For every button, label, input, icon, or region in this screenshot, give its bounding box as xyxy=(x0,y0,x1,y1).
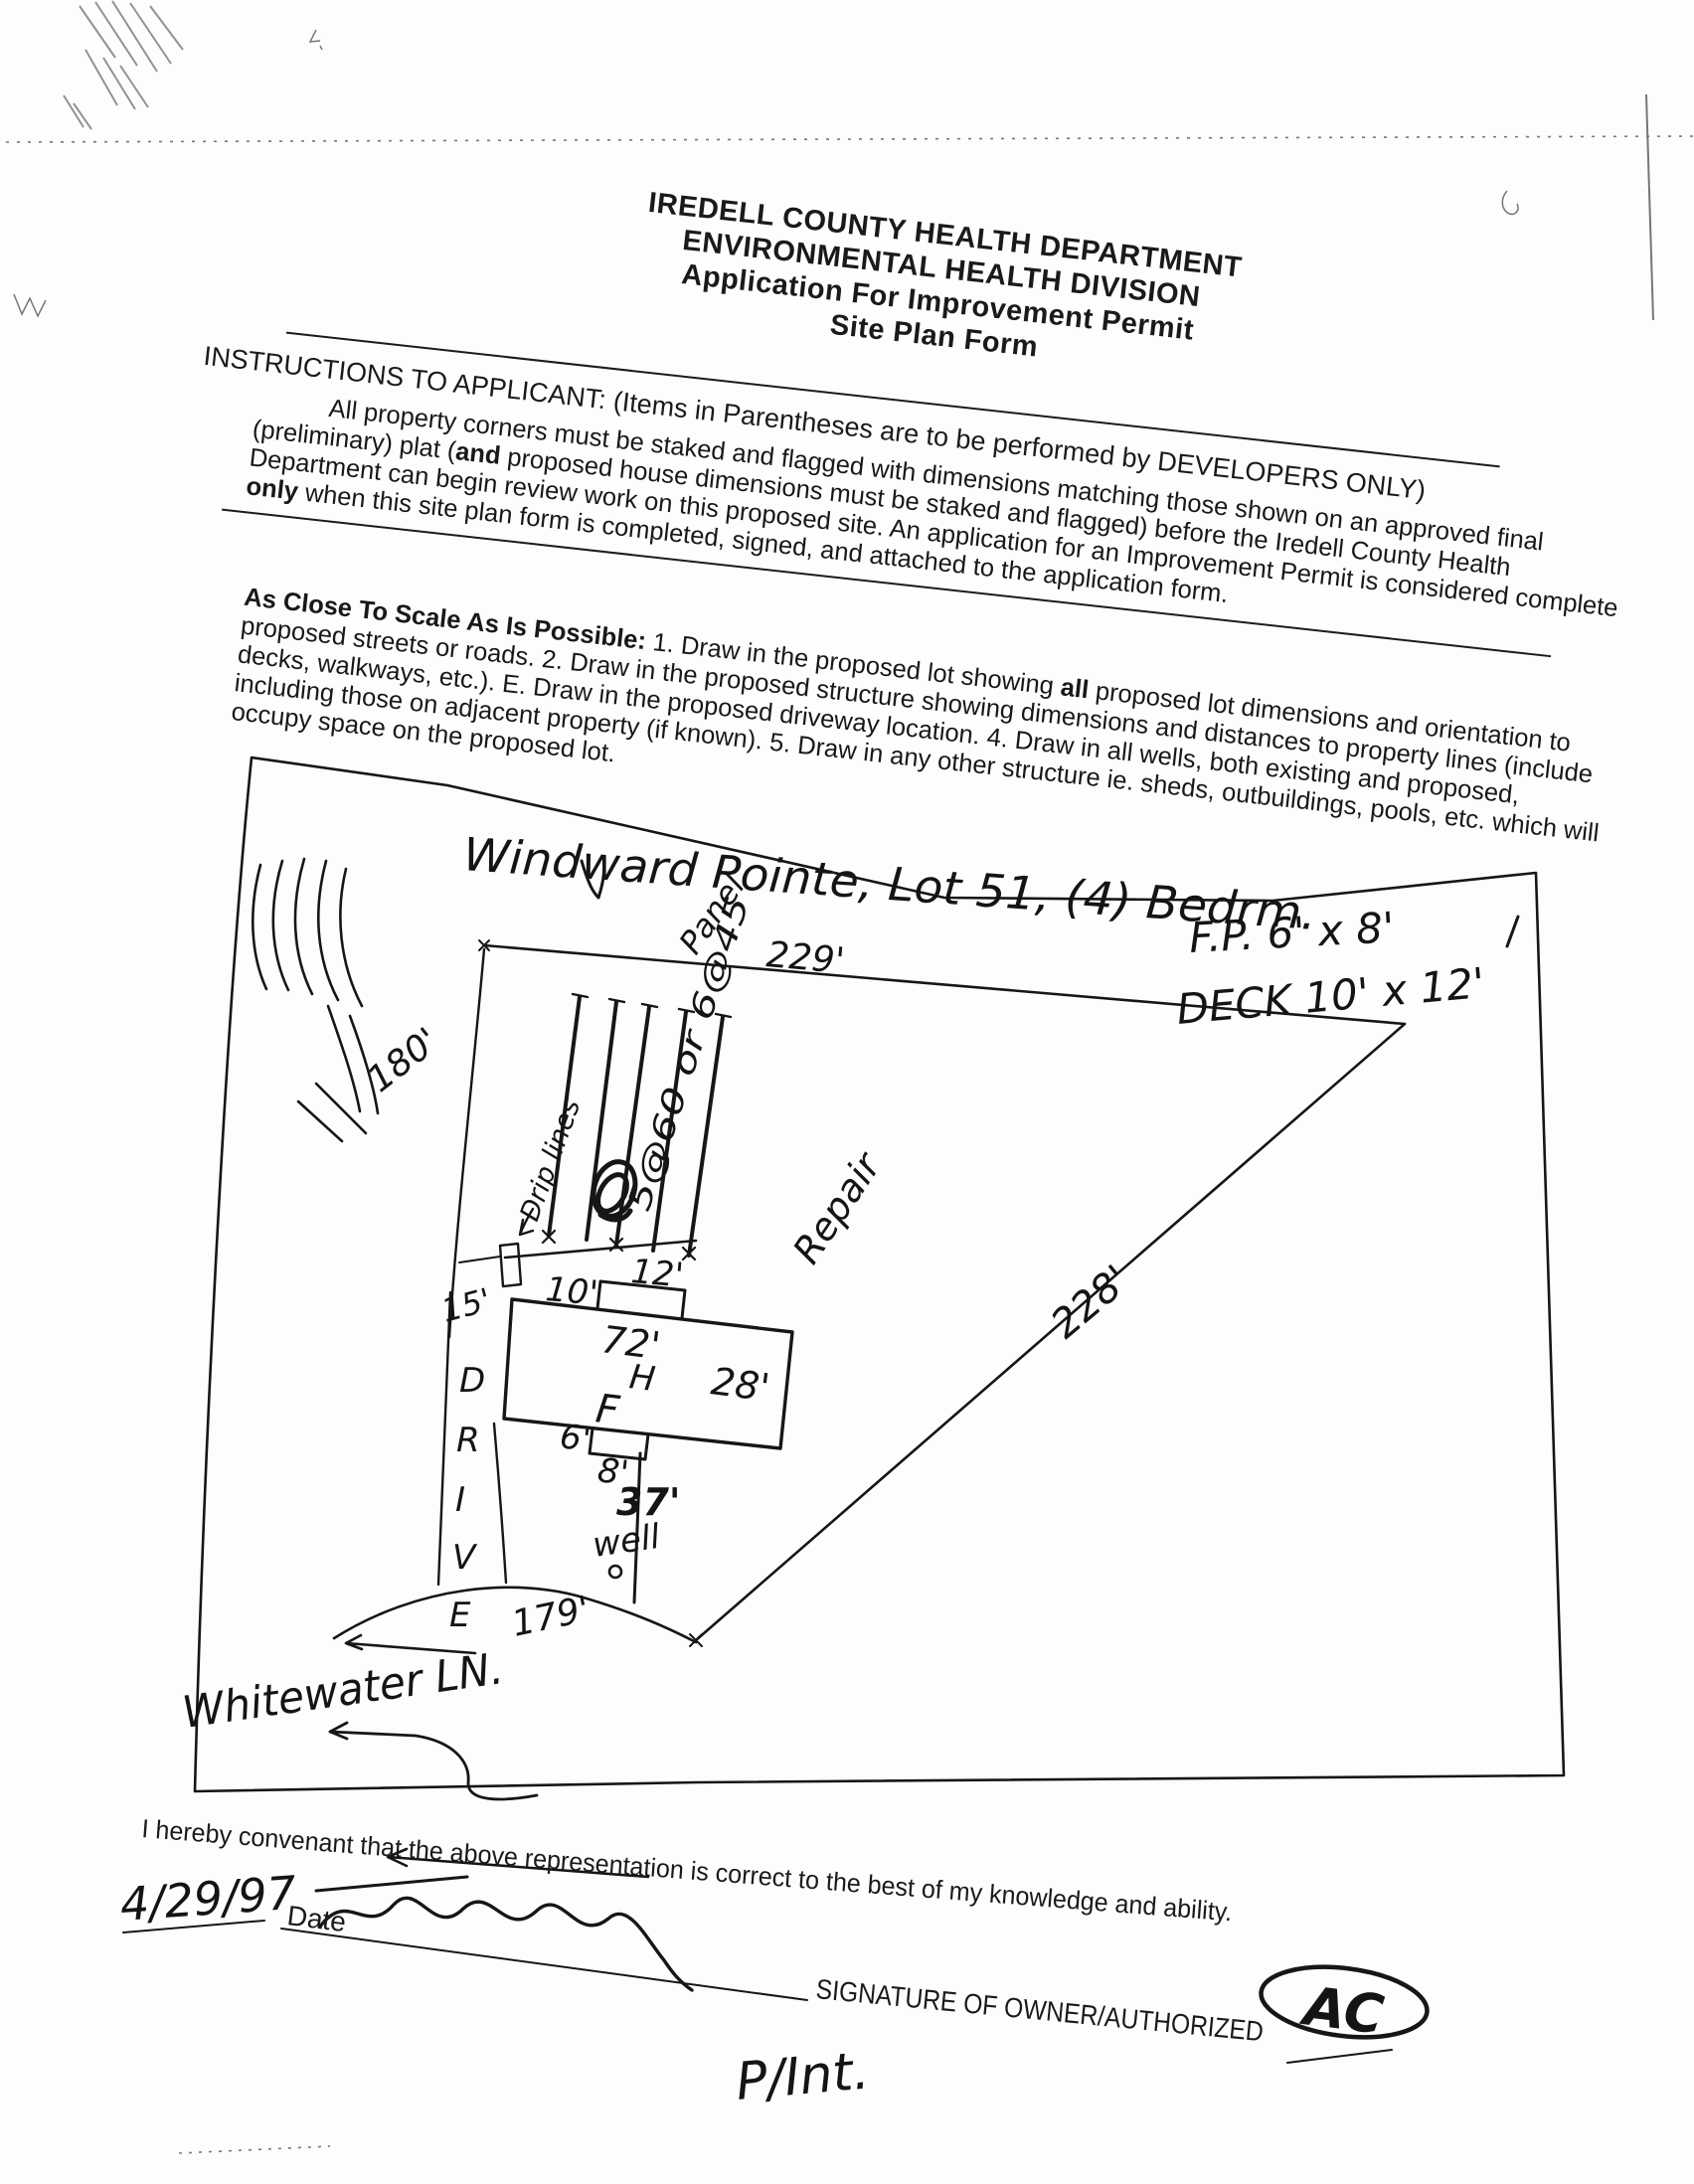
drive-letter-r: R xyxy=(456,1421,480,1460)
scan-corner-noise xyxy=(64,1,183,129)
property-line-right-228 xyxy=(696,1024,1405,1640)
drive-letter-i: I xyxy=(455,1480,465,1520)
panel-stub-line xyxy=(459,1257,500,1262)
scan-mark-tiny xyxy=(310,30,322,50)
deck-note: DECK 10' x 12' xyxy=(1175,958,1487,1034)
initials-underline xyxy=(1287,2050,1392,2063)
date-label: Date xyxy=(285,1900,347,1937)
drive-letter-d: D xyxy=(459,1361,485,1401)
para1-bold-only: only xyxy=(245,472,299,506)
signature-crossbar xyxy=(316,1877,467,1891)
signature-line xyxy=(281,1929,807,2000)
para2-bold-all: all xyxy=(1059,673,1090,704)
panel-box xyxy=(500,1244,521,1286)
scan-mark-curl xyxy=(1502,191,1518,214)
drive-edge-right xyxy=(494,1424,506,1583)
deck-width-label: 12' xyxy=(629,1252,685,1295)
scan-mark-left xyxy=(14,294,46,316)
dimension-top: 229' xyxy=(764,934,846,982)
para1-bold-and: and xyxy=(454,437,502,470)
deck-offset-label: 10' xyxy=(544,1269,599,1313)
drive-letter-v: V xyxy=(452,1538,478,1578)
porch-offset-label: 6' xyxy=(558,1417,593,1459)
bottom-note: P/Int. xyxy=(734,2041,872,2111)
well-symbol xyxy=(609,1566,621,1578)
dimension-front: 179' xyxy=(508,1589,593,1644)
house-h-label: H xyxy=(627,1357,657,1400)
agent-initials: AC xyxy=(1296,1974,1387,2047)
house-f-label: F xyxy=(593,1386,622,1434)
well-label: well xyxy=(591,1517,663,1566)
culdesac-squiggles xyxy=(253,859,378,1141)
scan-dotted-line-bottom xyxy=(179,2146,330,2153)
drive-letter-e: E xyxy=(449,1596,471,1635)
house-depth-label: 28' xyxy=(709,1359,772,1410)
repair-area-label: Repair xyxy=(784,1143,891,1271)
property-line-left-180 xyxy=(449,949,484,1337)
stray-tick-mark xyxy=(1507,917,1518,946)
setback-label: 15' xyxy=(437,1280,495,1330)
signature-line-label: SIGNATURE OF OWNER/AUTHORIZED xyxy=(814,1973,1265,2047)
scanned-site-plan-form: { "colors": { "ink": "#141414", "paper":… xyxy=(0,0,1694,2184)
date-value: 4/29/97 xyxy=(118,1866,298,1932)
fireplace-note: F.P. 6' x 8' xyxy=(1188,903,1396,962)
scan-edge-line-right xyxy=(1646,94,1653,320)
dimension-right: 228' xyxy=(1043,1257,1138,1347)
drive-edge-left xyxy=(438,1292,450,1585)
